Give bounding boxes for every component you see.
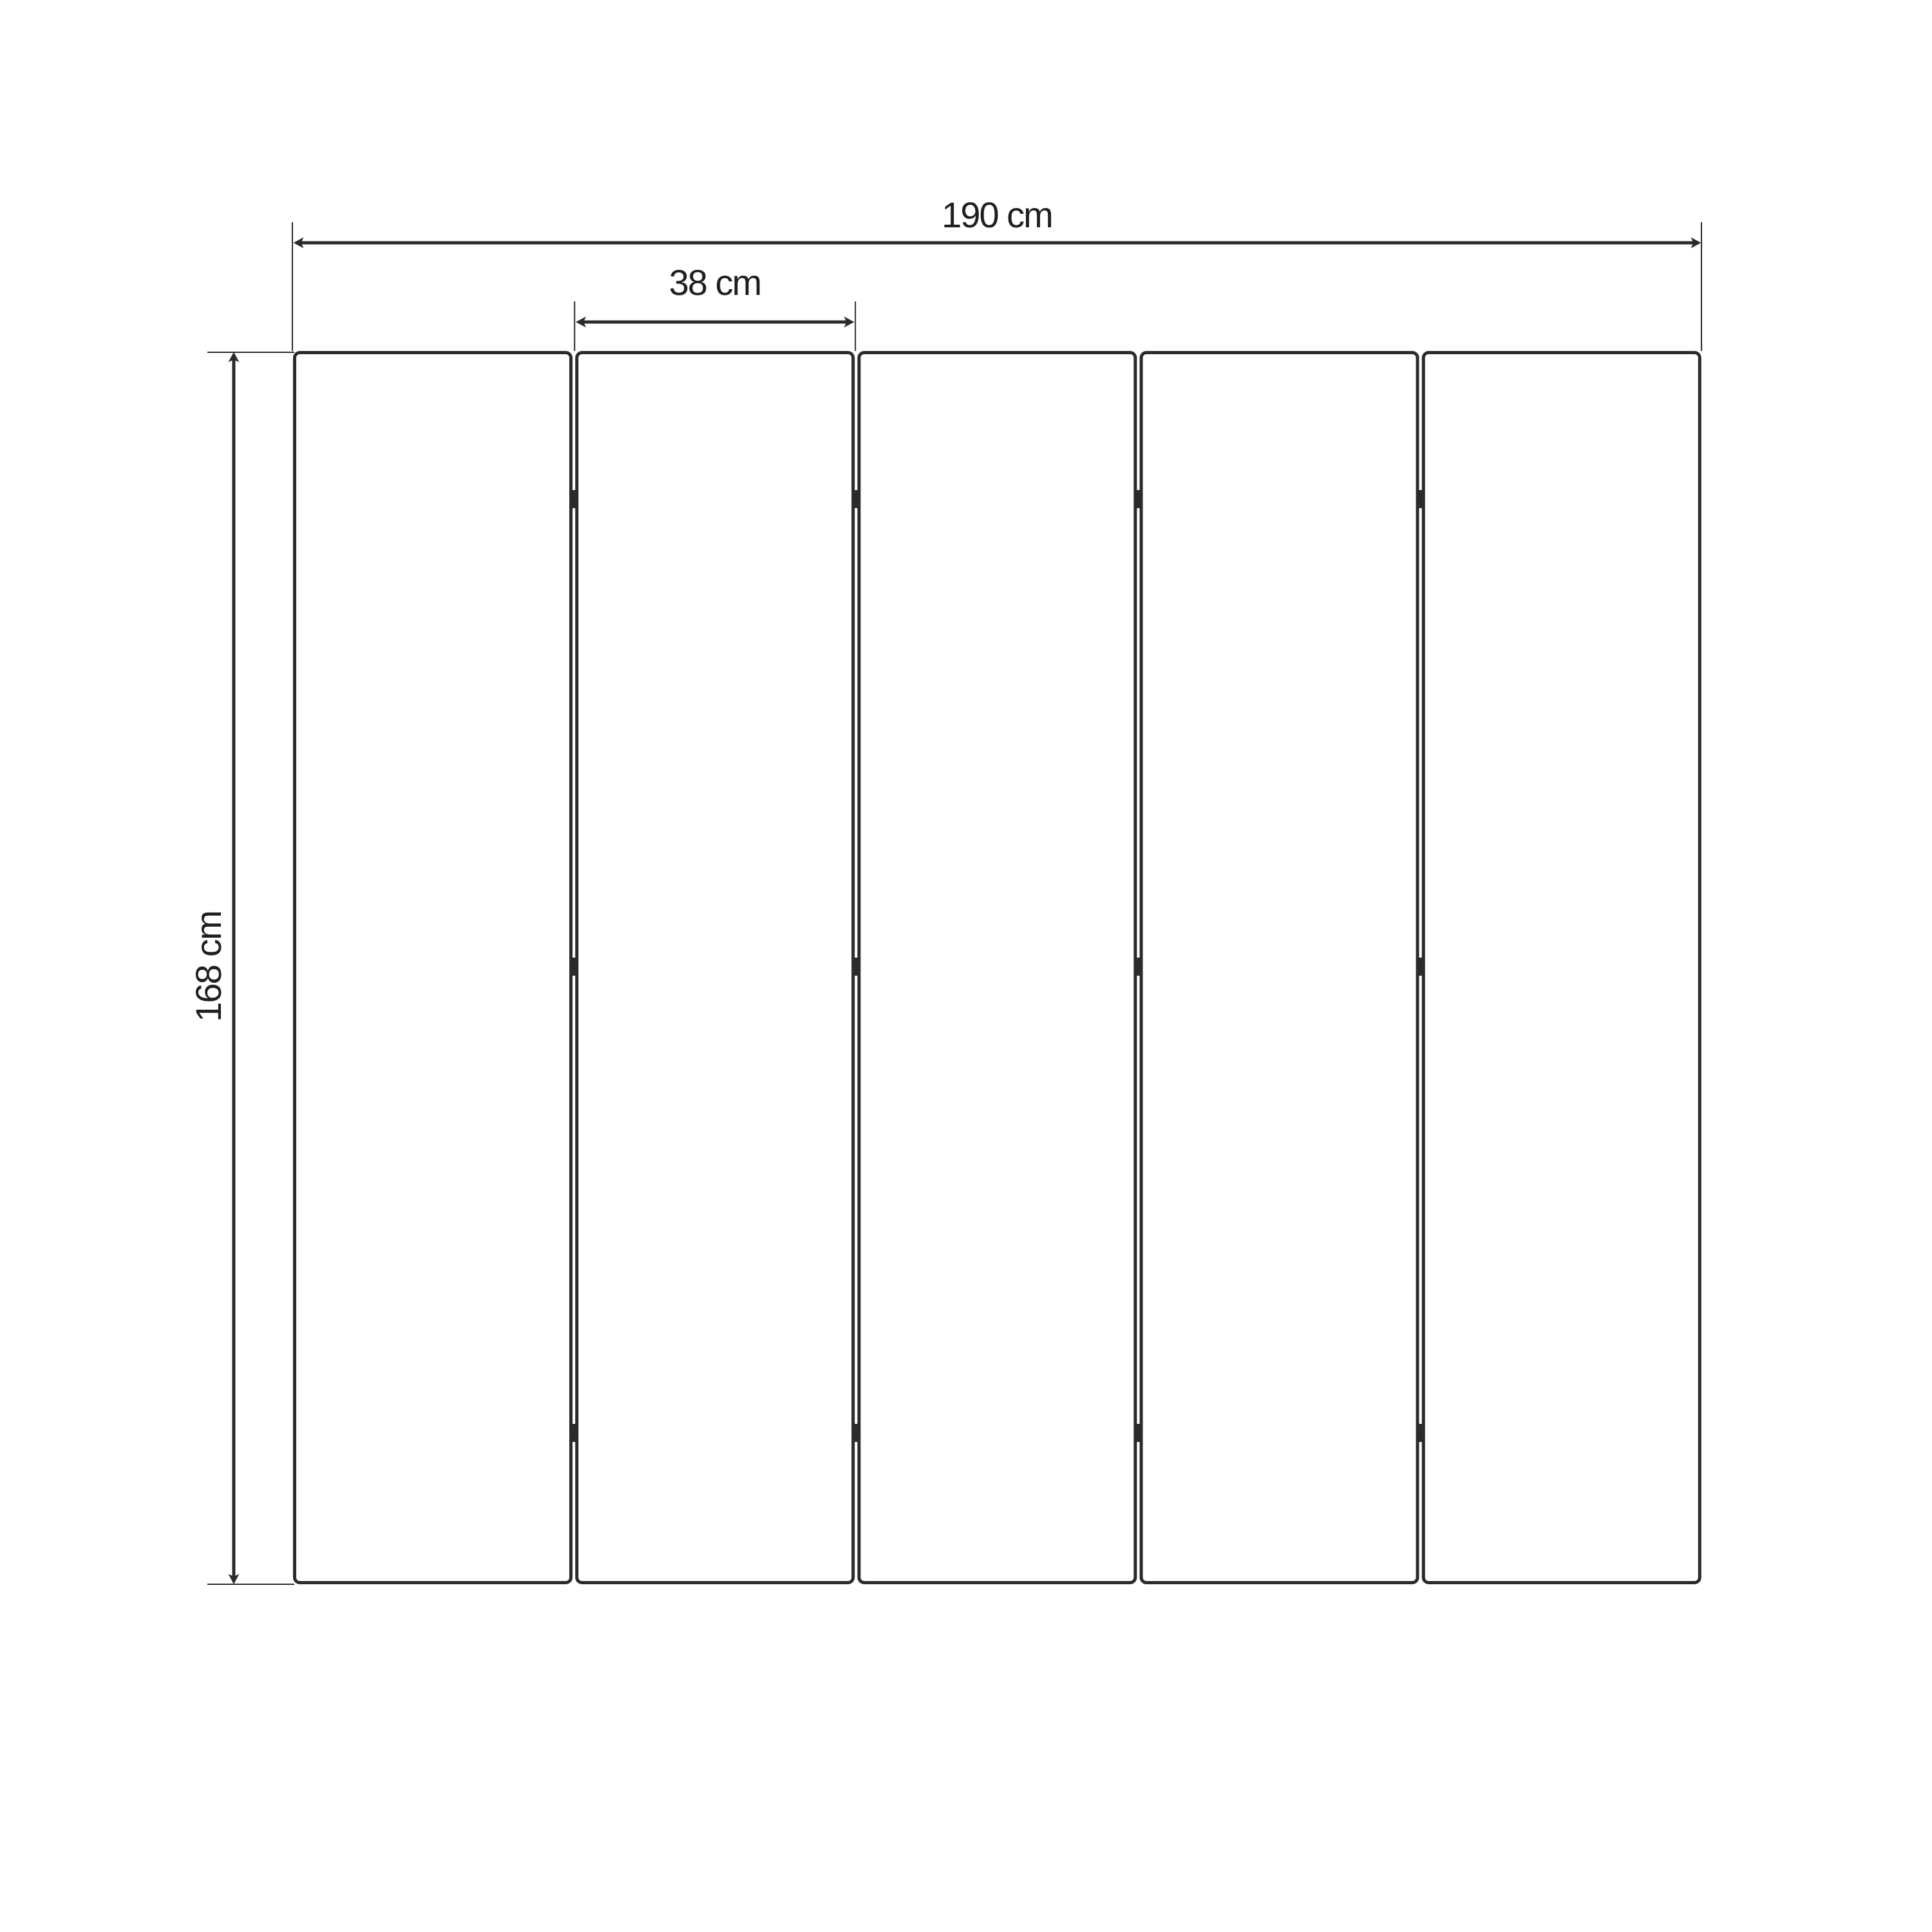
svg-text:38 cm: 38 cm (669, 262, 761, 303)
svg-text:168 cm: 168 cm (188, 911, 229, 1022)
svg-text:190 cm: 190 cm (942, 194, 1052, 235)
